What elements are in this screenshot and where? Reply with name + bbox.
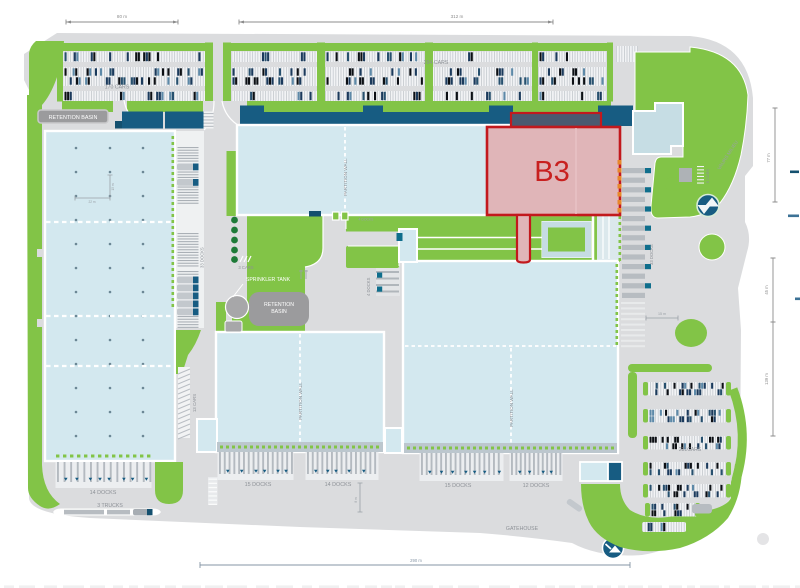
svg-text:PARTITION WALL: PARTITION WALL [298, 382, 303, 420]
svg-text:15 m: 15 m [111, 183, 115, 190]
svg-text:15 DOCKS: 15 DOCKS [245, 482, 272, 488]
svg-text:22 m: 22 m [88, 200, 95, 204]
svg-text:12 DOCKS: 12 DOCKS [523, 483, 550, 489]
svg-text:290 m: 290 m [410, 558, 422, 563]
svg-text:4 DOCKS: 4 DOCKS [366, 277, 371, 296]
svg-text:8 m: 8 m [354, 497, 358, 503]
svg-text:14 DOCKS: 14 DOCKS [90, 490, 117, 496]
svg-text:170 CARS: 170 CARS [105, 85, 130, 91]
svg-text:77 m: 77 m [766, 153, 771, 163]
svg-text:PARTITION WALL: PARTITION WALL [343, 158, 348, 196]
svg-text:B3: B3 [534, 156, 569, 188]
svg-text:139 m: 139 m [764, 373, 769, 385]
svg-text:33 DOCKS: 33 DOCKS [200, 247, 205, 268]
svg-text:3 TRUCKS: 3 TRUCKS [97, 503, 123, 509]
svg-text:231CARS: 231CARS [679, 447, 702, 453]
svg-text:14 DOCKS: 14 DOCKS [325, 482, 352, 488]
svg-text:RETENTION: RETENTION [264, 302, 294, 308]
svg-text:13 CARS: 13 CARS [192, 394, 197, 412]
svg-text:PARTITION WALL: PARTITION WALL [509, 389, 514, 427]
svg-text:45 m: 45 m [764, 285, 769, 295]
svg-text:5 CARS: 5 CARS [705, 168, 710, 183]
svg-text:GATEHOUSE: GATEHOUSE [506, 526, 539, 532]
svg-text:312 m: 312 m [451, 14, 464, 19]
svg-text:SPRINKLER TANK: SPRINKLER TANK [246, 277, 291, 283]
svg-text:15 m: 15 m [658, 312, 666, 316]
svg-text:80 m: 80 m [117, 14, 127, 19]
svg-text:4 DOCKS: 4 DOCKS [359, 218, 375, 222]
svg-text:294 CARS: 294 CARS [424, 60, 449, 66]
svg-text:RETENTION BASIN: RETENTION BASIN [49, 115, 98, 121]
svg-text:BASIN: BASIN [271, 309, 287, 315]
svg-text:15 DOCKS: 15 DOCKS [445, 483, 472, 489]
svg-text:33 DOCKS: 33 DOCKS [649, 244, 654, 265]
svg-text:3 CARS: 3 CARS [238, 265, 253, 270]
